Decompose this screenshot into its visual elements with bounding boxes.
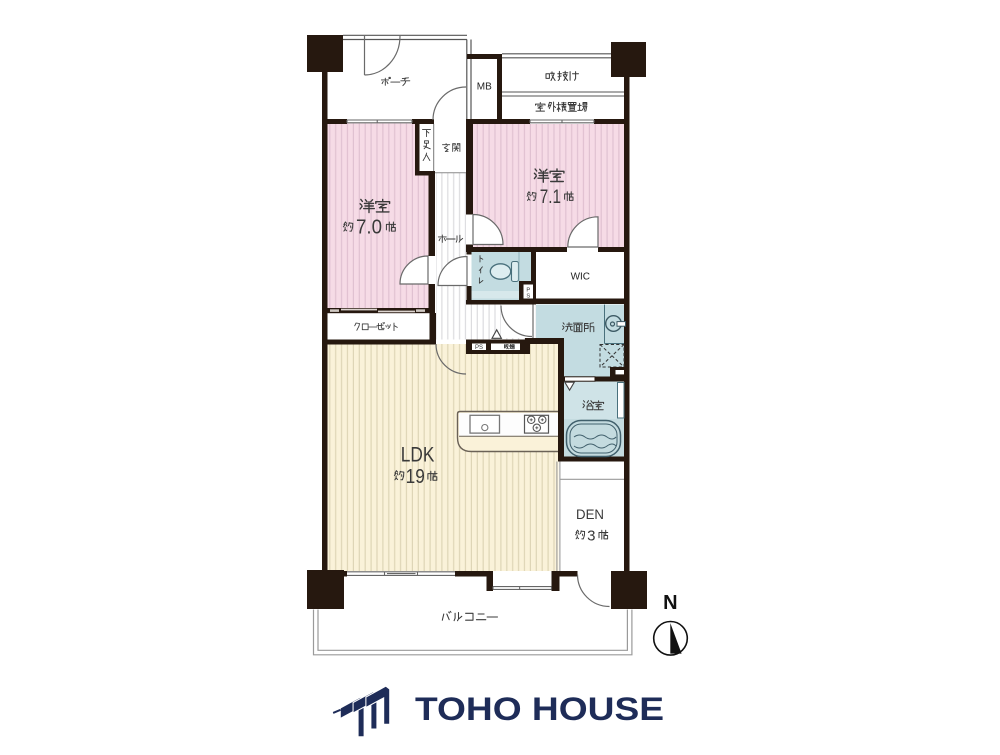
svg-text:TOHO HOUSE: TOHO HOUSE [415,691,664,727]
svg-text:7.1: 7.1 [540,187,561,208]
svg-text:19: 19 [406,466,425,488]
svg-text:P: P [526,287,530,293]
svg-text:PS: PS [475,345,483,351]
svg-text:S: S [526,294,530,300]
svg-text:N: N [663,592,677,614]
svg-text:DEN: DEN [576,506,604,522]
svg-text:3: 3 [587,528,595,545]
svg-text:LDK: LDK [401,442,435,467]
svg-text:7.0: 7.0 [356,217,382,239]
svg-text:WIC: WIC [571,271,590,282]
svg-text:MB: MB [477,82,492,93]
